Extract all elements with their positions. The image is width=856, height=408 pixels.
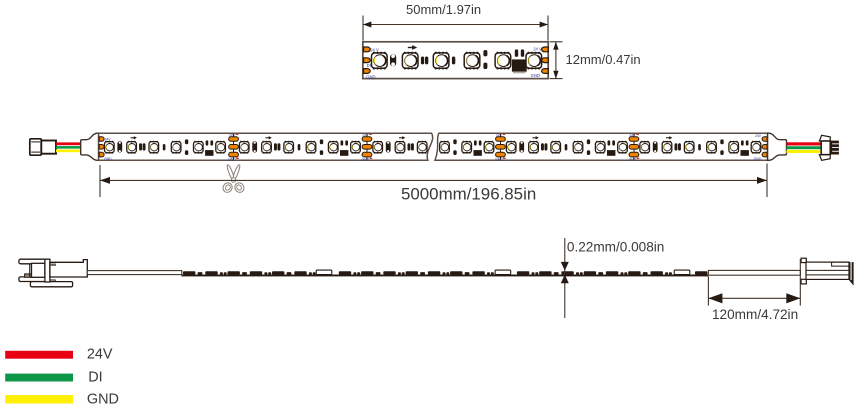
svg-text:GND: GND — [87, 391, 119, 407]
svg-text:GND: GND — [366, 75, 375, 80]
svg-text:12mm/0.47in: 12mm/0.47in — [566, 52, 641, 67]
svg-text:24V: 24V — [362, 133, 369, 137]
svg-text:5000mm/196.85in: 5000mm/196.85in — [401, 185, 536, 204]
svg-text:GND: GND — [531, 73, 540, 78]
svg-text:24 V: 24 V — [370, 47, 379, 52]
svg-text:GND: GND — [104, 157, 112, 161]
svg-text:GND: GND — [754, 157, 762, 161]
svg-text:DI: DI — [88, 369, 102, 385]
svg-text:24V: 24V — [496, 133, 503, 137]
svg-text:24V: 24V — [87, 347, 113, 363]
svg-text:50mm/1.97in: 50mm/1.97in — [406, 2, 481, 17]
svg-text:24V: 24V — [755, 134, 762, 138]
svg-text:24V: 24V — [229, 133, 236, 137]
svg-text:DI: DI — [367, 63, 371, 68]
svg-text:24 V: 24 V — [533, 47, 542, 52]
svg-text:GND: GND — [362, 157, 370, 161]
svg-text:120mm/4.72in: 120mm/4.72in — [712, 307, 798, 322]
svg-text:GND: GND — [228, 157, 236, 161]
svg-text:0.22mm/0.008in: 0.22mm/0.008in — [567, 239, 664, 254]
svg-text:24V: 24V — [629, 133, 636, 137]
svg-text:GND: GND — [495, 157, 503, 161]
svg-text:GND: GND — [629, 157, 637, 161]
